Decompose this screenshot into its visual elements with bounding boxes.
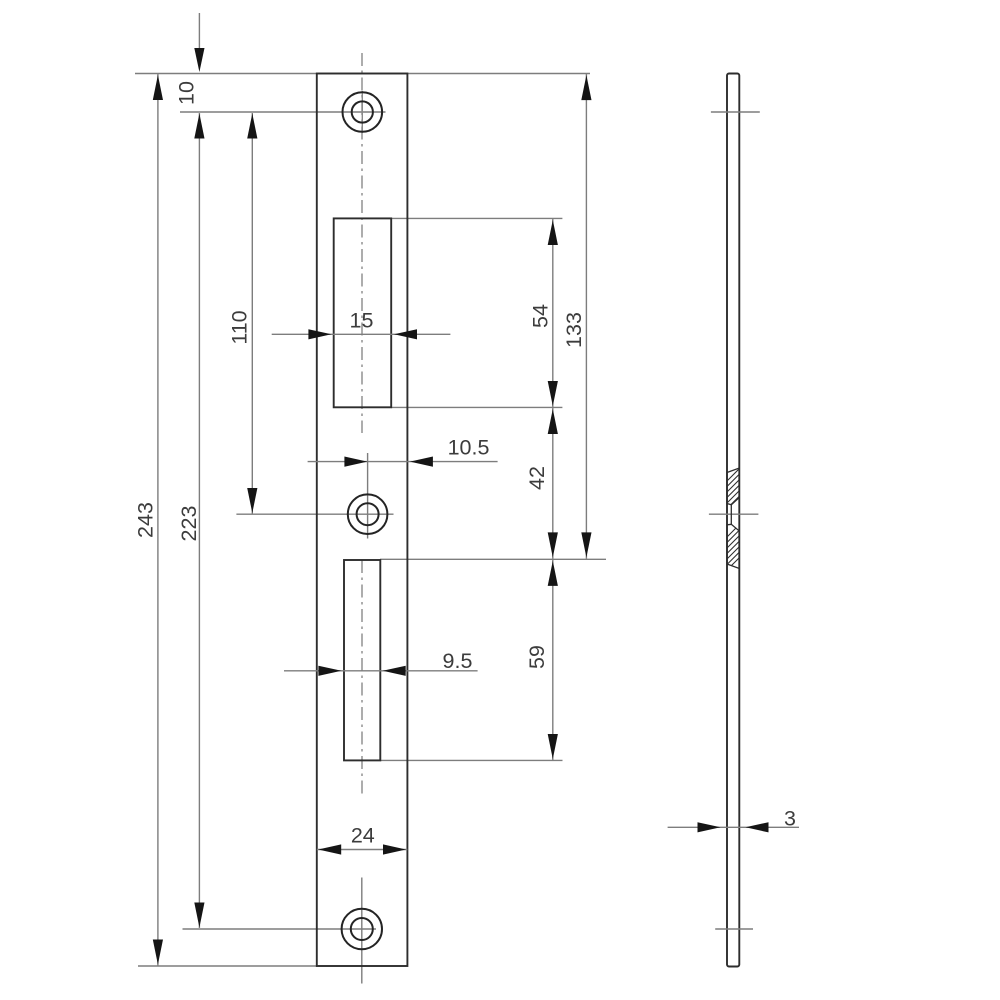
svg-text:54: 54 [529, 304, 553, 328]
svg-text:133: 133 [562, 312, 586, 348]
svg-text:42: 42 [525, 466, 549, 490]
svg-text:223: 223 [177, 506, 201, 542]
svg-text:10.5: 10.5 [448, 436, 490, 460]
svg-text:9.5: 9.5 [443, 649, 473, 673]
svg-text:110: 110 [228, 310, 252, 344]
svg-text:3: 3 [784, 807, 796, 831]
svg-text:24: 24 [351, 824, 375, 848]
svg-text:15: 15 [350, 309, 374, 333]
svg-text:59: 59 [525, 645, 549, 669]
svg-text:10: 10 [175, 81, 199, 105]
svg-text:243: 243 [134, 502, 158, 538]
